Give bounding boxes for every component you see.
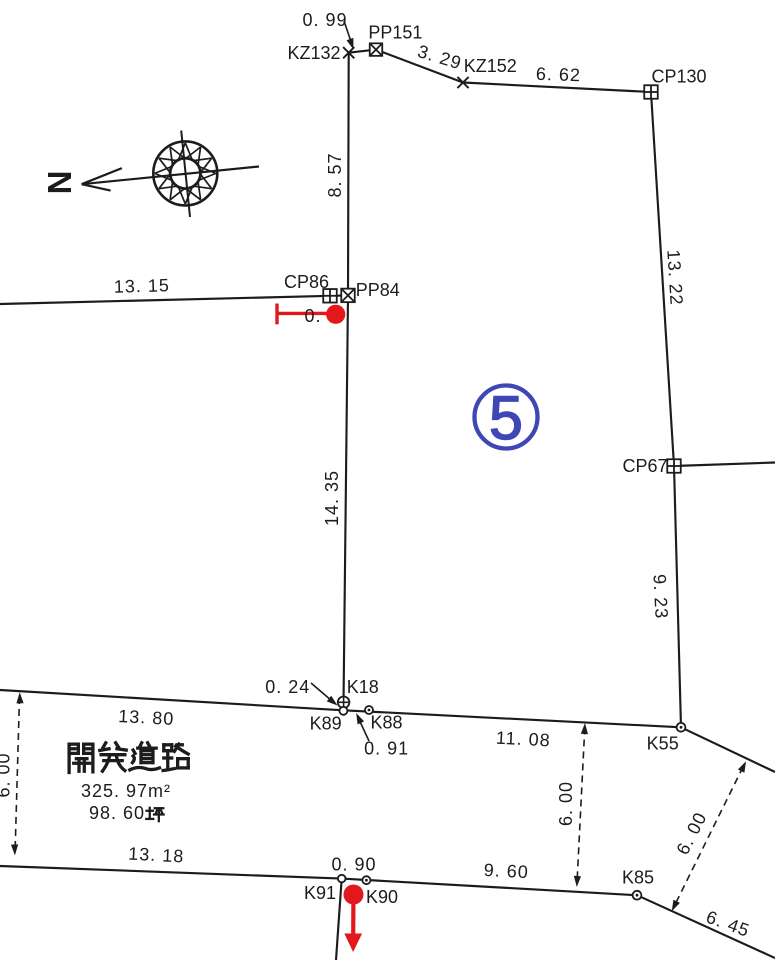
svg-text:13. 80: 13. 80	[118, 706, 175, 729]
svg-text:KZ152: KZ152	[464, 56, 517, 76]
svg-text:K88: K88	[370, 713, 402, 733]
svg-text:325. 97m²: 325. 97m²	[81, 781, 171, 801]
svg-text:13. 22: 13. 22	[663, 249, 686, 306]
svg-text:98. 60: 98. 60	[89, 803, 145, 823]
svg-text:9. 60: 9. 60	[483, 860, 529, 882]
svg-text:KZ132: KZ132	[287, 43, 340, 63]
svg-text:CP130: CP130	[651, 67, 706, 87]
svg-text:13. 18: 13. 18	[128, 844, 185, 867]
svg-text:CP67: CP67	[622, 456, 667, 476]
svg-text:K89: K89	[310, 714, 342, 734]
svg-text:0.: 0.	[304, 306, 321, 326]
svg-text:11. 08: 11. 08	[495, 728, 551, 751]
svg-text:K91: K91	[304, 883, 336, 903]
svg-text:N: N	[41, 171, 78, 195]
svg-text:0. 24: 0. 24	[265, 677, 310, 697]
svg-text:6. 00: 6. 00	[0, 752, 14, 797]
svg-text:CP86: CP86	[284, 272, 329, 292]
svg-text:6. 00: 6. 00	[556, 781, 576, 826]
svg-text:PP151: PP151	[368, 23, 422, 43]
svg-text:K90: K90	[366, 887, 398, 907]
svg-text:6. 62: 6. 62	[536, 64, 582, 86]
svg-text:5: 5	[489, 384, 523, 452]
svg-text:13. 15: 13. 15	[114, 275, 171, 296]
svg-text:PP84: PP84	[356, 280, 400, 300]
svg-text:K55: K55	[647, 734, 679, 754]
svg-text:8. 57: 8. 57	[325, 152, 345, 197]
svg-text:K85: K85	[622, 868, 654, 888]
svg-text:K18: K18	[347, 677, 379, 697]
svg-text:9. 23: 9. 23	[649, 574, 671, 620]
svg-text:0. 99: 0. 99	[302, 10, 347, 30]
svg-text:0. 91: 0. 91	[364, 739, 409, 759]
svg-text:14. 35: 14. 35	[322, 470, 342, 526]
svg-text:0. 90: 0. 90	[331, 855, 376, 875]
